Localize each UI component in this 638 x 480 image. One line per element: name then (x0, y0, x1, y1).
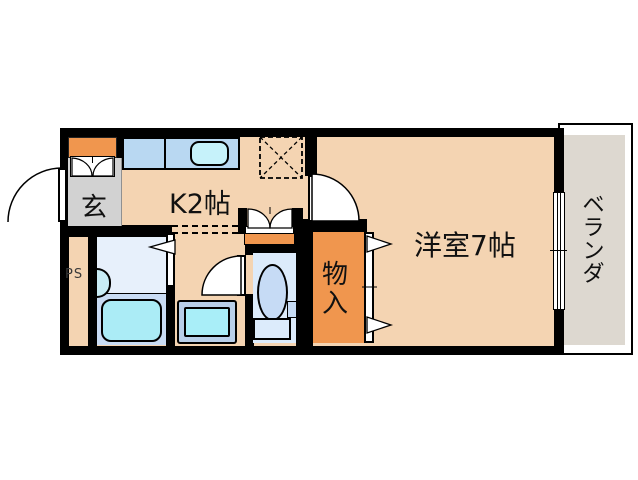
label-closet-char-2: 入 (322, 290, 348, 319)
floor-plan: 玄 K2帖 洋室7帖 物 入 ベ ラ ン ダ PS (0, 0, 638, 480)
label-pipe-space: PS (65, 267, 83, 282)
toilet-door-swing (202, 256, 241, 295)
shoe-cabinet-door-petal-right (93, 158, 113, 176)
washbasin-door-petal-left (248, 209, 270, 228)
label-western-room: 洋室7帖 (414, 224, 516, 264)
room-door-swing (312, 174, 359, 221)
label-entrance: 玄 (81, 187, 107, 224)
closet-door-arrow-bottom (367, 317, 391, 333)
label-closet: 物 入 (321, 261, 349, 319)
label-closet-char-1: 物 (322, 261, 348, 290)
label-veranda-char-1: ベ (582, 194, 604, 217)
closet-door-arrow-top (367, 236, 391, 252)
bathroom-door-arrow (150, 240, 175, 254)
washbasin-door-petal-right (270, 209, 292, 228)
label-kitchen: K2帖 (169, 182, 231, 221)
label-veranda-char-4: ダ (582, 263, 604, 286)
label-veranda: ベ ラ ン ダ (582, 194, 605, 286)
plan-symbols (0, 0, 638, 480)
label-veranda-char-3: ン (582, 240, 604, 263)
entrance-door-arc (8, 168, 62, 222)
shoe-cabinet-door-petal-left (72, 158, 92, 176)
label-veranda-char-2: ラ (582, 217, 604, 240)
